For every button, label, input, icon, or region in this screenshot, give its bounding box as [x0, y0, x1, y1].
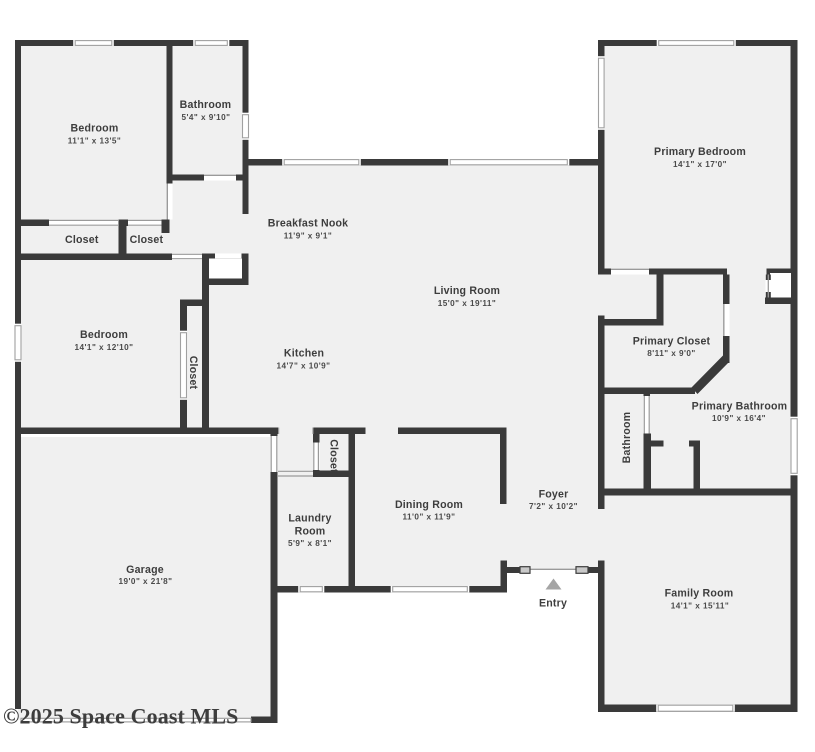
svg-text:10'9" x 16'4": 10'9" x 16'4" [712, 414, 766, 423]
svg-text:Room: Room [295, 526, 326, 538]
svg-text:14'1" x 12'10": 14'1" x 12'10" [75, 343, 134, 352]
svg-text:Closet: Closet [328, 439, 340, 473]
svg-text:©2025 Space Coast MLS: ©2025 Space Coast MLS [3, 704, 239, 729]
svg-text:Bedroom: Bedroom [80, 329, 128, 341]
svg-text:14'1" x 15'11": 14'1" x 15'11" [671, 602, 729, 611]
svg-text:Laundry: Laundry [288, 513, 331, 525]
svg-text:Breakfast Nook: Breakfast Nook [268, 218, 349, 230]
svg-text:5'4" x 9'10": 5'4" x 9'10" [182, 113, 231, 122]
svg-text:Family Room: Family Room [665, 588, 734, 600]
svg-text:Bathroom: Bathroom [621, 412, 633, 464]
svg-text:11'9" x 9'1": 11'9" x 9'1" [284, 232, 332, 241]
svg-text:7'2" x 10'2": 7'2" x 10'2" [529, 502, 578, 511]
svg-text:14'7" x 10'9": 14'7" x 10'9" [277, 362, 331, 371]
svg-text:Kitchen: Kitchen [284, 348, 324, 360]
svg-text:Dining Room: Dining Room [395, 499, 463, 511]
svg-text:5'9" x 8'1": 5'9" x 8'1" [288, 539, 332, 548]
svg-text:Primary Bathroom: Primary Bathroom [692, 401, 788, 413]
svg-text:8'11" x 9'0": 8'11" x 9'0" [647, 349, 695, 358]
svg-text:15'0" x 19'11": 15'0" x 19'11" [438, 299, 496, 308]
svg-text:Garage: Garage [126, 564, 164, 576]
svg-text:Living Room: Living Room [434, 285, 500, 297]
svg-text:Entry: Entry [539, 598, 567, 610]
svg-text:11'1" x 13'5": 11'1" x 13'5" [68, 137, 121, 146]
svg-text:11'0" x 11'9": 11'0" x 11'9" [402, 513, 455, 522]
svg-text:Primary Bedroom: Primary Bedroom [654, 146, 746, 158]
svg-text:Foyer: Foyer [539, 489, 569, 501]
svg-text:19'0" x 21'8": 19'0" x 21'8" [119, 577, 173, 586]
svg-text:14'1" x 17'0": 14'1" x 17'0" [673, 160, 727, 169]
svg-text:Closet: Closet [130, 234, 164, 246]
svg-text:Closet: Closet [187, 356, 199, 390]
svg-text:Bathroom: Bathroom [180, 99, 232, 111]
svg-text:Bedroom: Bedroom [71, 123, 119, 135]
svg-text:Primary Closet: Primary Closet [633, 336, 711, 348]
svg-text:Closet: Closet [65, 234, 99, 246]
